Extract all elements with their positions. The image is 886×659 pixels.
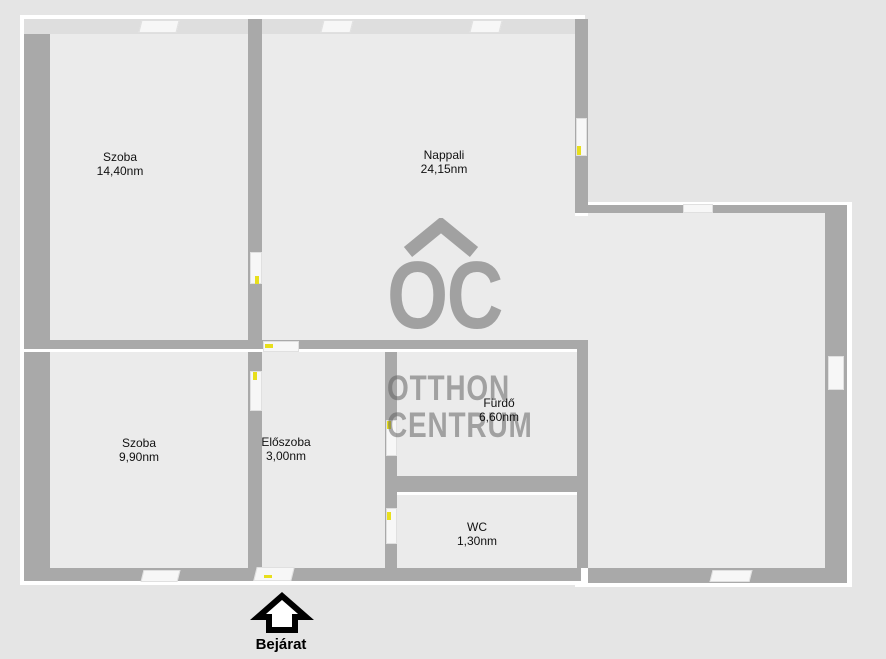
floorplan-canvas: OC OTTHON CENTRUM Szoba 14,40nm Nappali … <box>0 0 886 659</box>
window-icon-rightroom-top <box>683 204 713 213</box>
room-name: Fürdő <box>439 396 559 410</box>
window-icon-szoba2-bottom <box>141 570 181 582</box>
window-icon-nappali-top-2 <box>469 20 502 33</box>
room-area: 6,60nm <box>439 410 559 424</box>
wall-furdo-bottom <box>397 476 577 492</box>
window-icon-rightroom-right <box>828 356 844 390</box>
window-icon-nappali-top-1 <box>320 20 353 33</box>
room-area: 24,15nm <box>384 162 504 176</box>
door-tick-nappali <box>577 146 581 155</box>
entrance-label: Bejárat <box>221 636 341 653</box>
room-name: Előszoba <box>226 435 346 449</box>
window-icon-szoba1-top <box>138 20 179 33</box>
window-icon-rightroom-bottom <box>710 570 753 582</box>
wall-rightroom-right <box>825 205 847 583</box>
watermark-oc-text: OC <box>387 248 502 344</box>
door-tick-entrance <box>264 575 272 578</box>
room-area: 3,00nm <box>226 449 346 463</box>
wall-nappali-right <box>575 19 588 213</box>
door-icon-entrance <box>253 567 294 581</box>
room-label-nappali: Nappali 24,15nm <box>384 148 504 176</box>
room-label-szoba1: Szoba 14,40nm <box>60 150 180 178</box>
room-name: Nappali <box>384 148 504 162</box>
door-tick-eloszoba-top <box>265 344 273 348</box>
floor-szoba1 <box>50 34 248 340</box>
room-name: Szoba <box>60 150 180 164</box>
room-label-eloszoba: Előszoba 3,00nm <box>226 435 346 463</box>
door-tick-wc <box>387 512 391 520</box>
door-tick-szoba2 <box>253 372 257 380</box>
room-name: WC <box>417 520 537 534</box>
wall-left-outer <box>24 19 50 581</box>
room-label-furdo: Fürdő 6,60nm <box>439 396 559 424</box>
floor-rightroom <box>588 213 825 568</box>
room-label-wc: WC 1,30nm <box>417 520 537 548</box>
door-tick-szoba1 <box>255 276 259 284</box>
room-label-szoba2: Szoba 9,90nm <box>79 436 199 464</box>
room-area: 1,30nm <box>417 534 537 548</box>
room-name: Szoba <box>79 436 199 450</box>
room-area: 14,40nm <box>60 164 180 178</box>
room-area: 9,90nm <box>79 450 199 464</box>
wall-bottom-outer <box>24 568 581 581</box>
wall-szoba-nappali <box>248 19 262 568</box>
entrance-arrow-icon <box>250 592 314 636</box>
